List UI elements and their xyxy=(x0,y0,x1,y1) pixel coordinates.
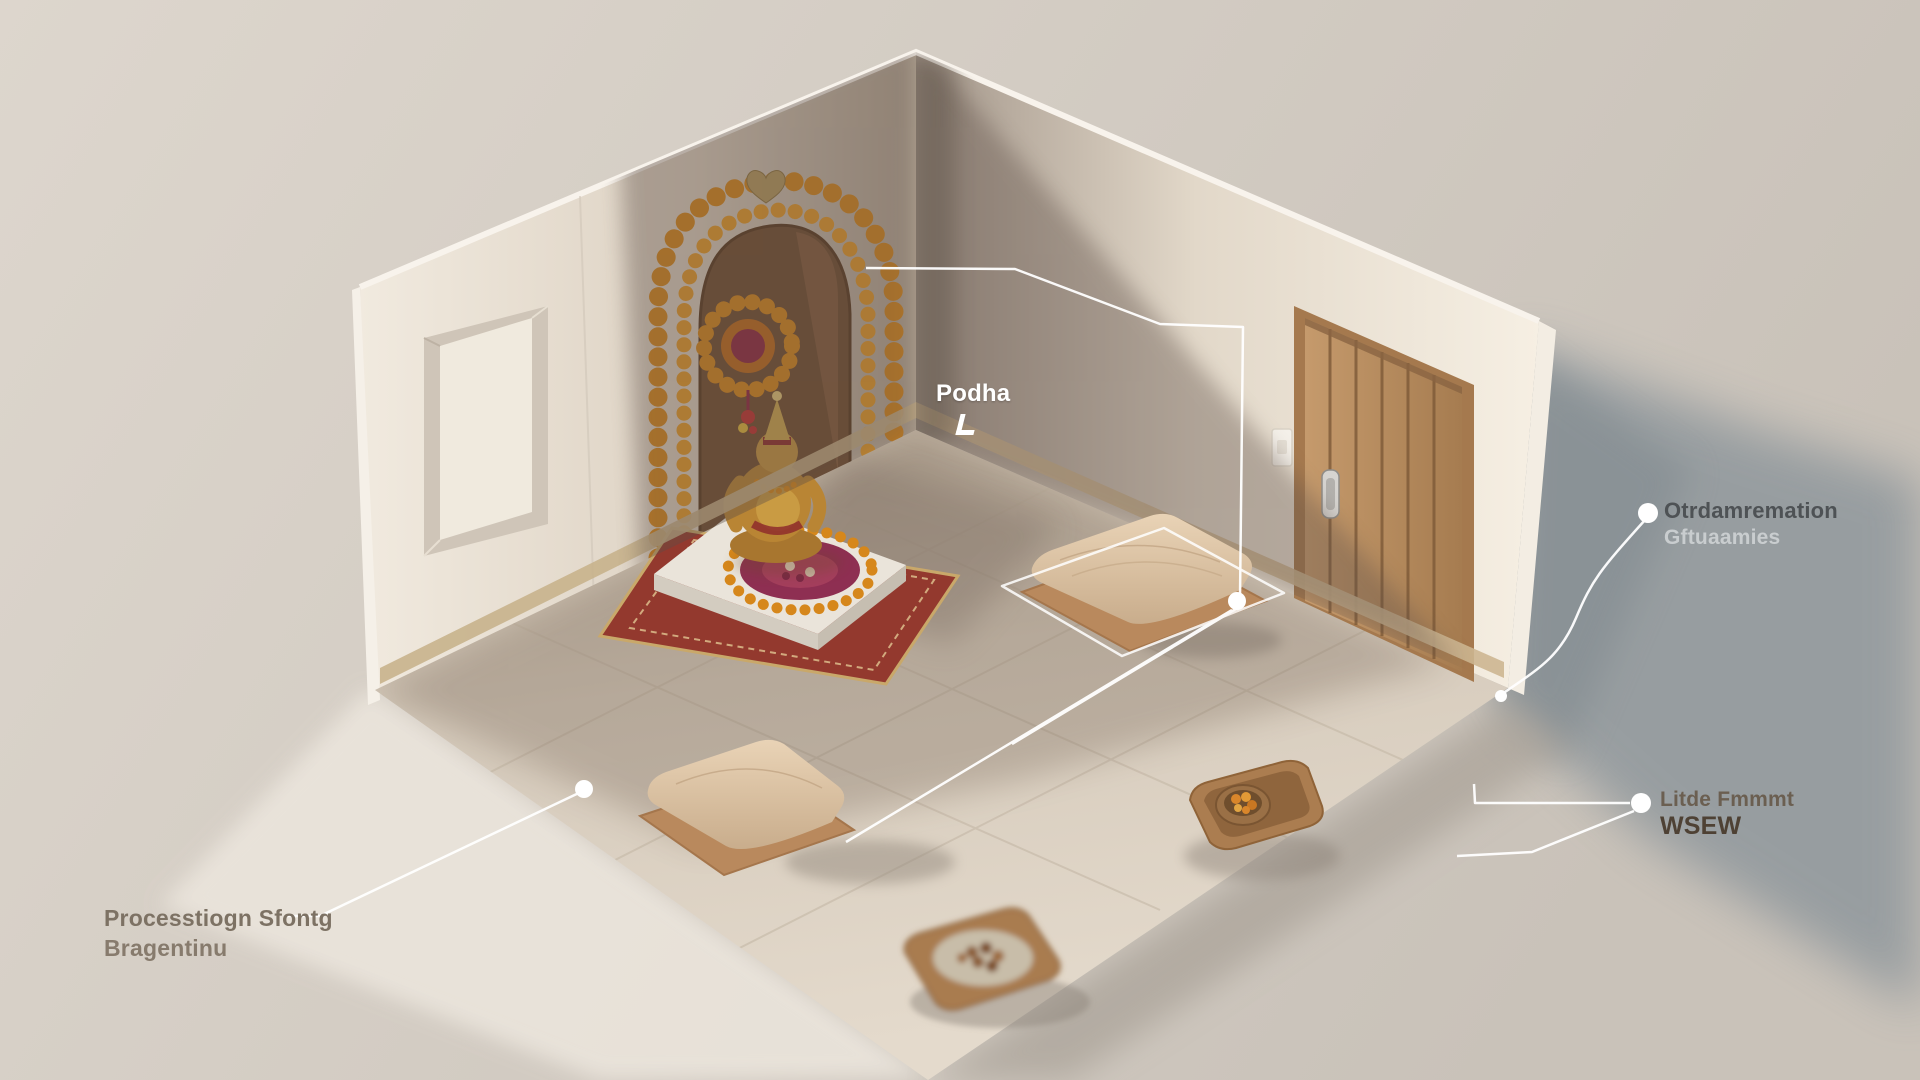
annotation-bottom-left: Processtiogn Sfontg Bragentinu xyxy=(104,903,333,963)
leader-dot-cushion xyxy=(1228,592,1246,610)
leader-dot-right-bottom xyxy=(1631,793,1651,813)
corner-arrow-icon xyxy=(955,414,978,435)
annotation-line: Gftuaamies xyxy=(1664,524,1838,551)
annotation-line: WSEW xyxy=(1660,813,1794,839)
annotation-line: Otrdamremation xyxy=(1664,497,1838,524)
isometric-room-render: Podha Otrdamremation Gftuaamies Litde Fm… xyxy=(0,0,1920,1080)
annotation-line: Bragentinu xyxy=(104,933,333,963)
annotation-right-bottom: Litde Fmmmt WSEW xyxy=(1660,787,1794,839)
leader-dot-right-top xyxy=(1638,503,1658,523)
podha-text: Podha xyxy=(936,380,1010,408)
window-opening xyxy=(424,306,548,556)
annotation-line: Processtiogn Sfontg xyxy=(104,903,333,933)
leader-dot-bottom-left xyxy=(575,780,593,798)
leader-dot-wall xyxy=(1495,690,1507,702)
annotation-right-top: Otrdamremation Gftuaamies xyxy=(1664,497,1838,551)
annotation-podha: Podha xyxy=(936,380,1010,442)
annotation-line: Litde Fmmmt xyxy=(1660,787,1794,813)
